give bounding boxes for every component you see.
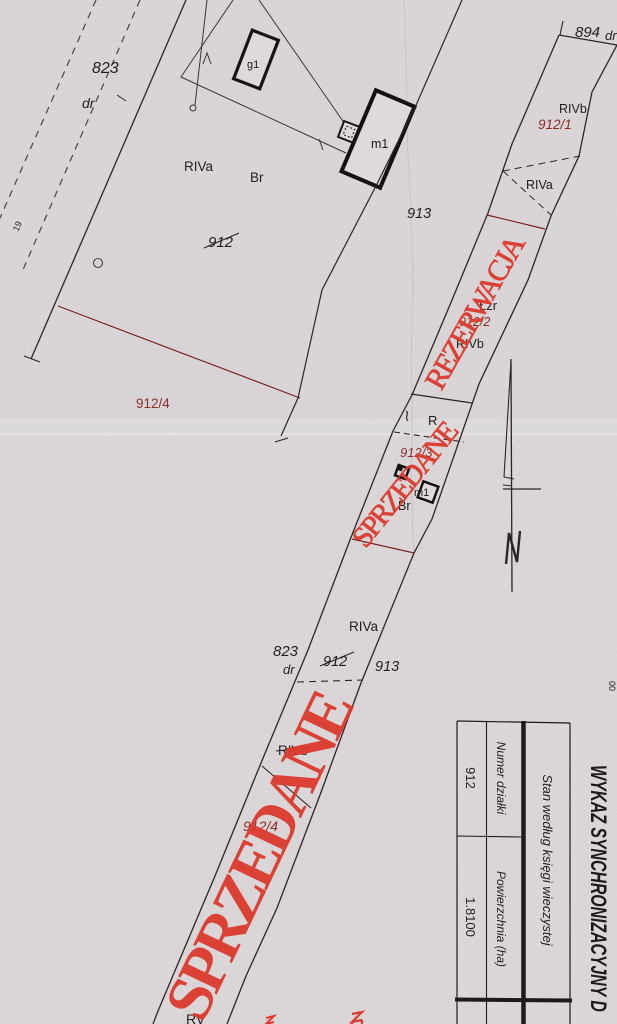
svg-text:RIVa: RIVa [349,619,379,634]
svg-text:RIVa: RIVa [184,159,214,174]
svg-text:913: 913 [375,659,399,675]
svg-text:Stan według księgi wieczystej: Stan według księgi wieczystej [540,774,555,946]
svg-text:823: 823 [273,643,299,660]
svg-text:dr: dr [283,662,295,677]
svg-text:894: 894 [575,24,600,41]
svg-text:dr: dr [82,95,96,111]
svg-text:912: 912 [463,767,478,789]
svg-text:912/4: 912/4 [136,396,170,411]
svg-text:913: 913 [407,206,431,222]
svg-text:823: 823 [92,60,119,77]
svg-text:RIVa: RIVa [526,178,553,192]
svg-text:WYKAZ SYNCHRONIZACYJNY D: WYKAZ SYNCHRONIZACYJNY D [585,765,609,1012]
svg-text:1.8100: 1.8100 [463,897,478,937]
svg-text:00: 00 [607,681,617,691]
svg-text:g1: g1 [247,59,259,71]
svg-text:dr: dr [605,28,617,43]
svg-text:Br: Br [250,170,264,185]
svg-text:RIVb: RIVb [559,102,587,116]
svg-text:912/1: 912/1 [538,117,572,132]
svg-text:Powierzchnia (ha): Powierzchnia (ha) [494,871,508,967]
svg-text:m1: m1 [371,137,388,151]
svg-text:Numer działki: Numer działki [494,742,508,815]
